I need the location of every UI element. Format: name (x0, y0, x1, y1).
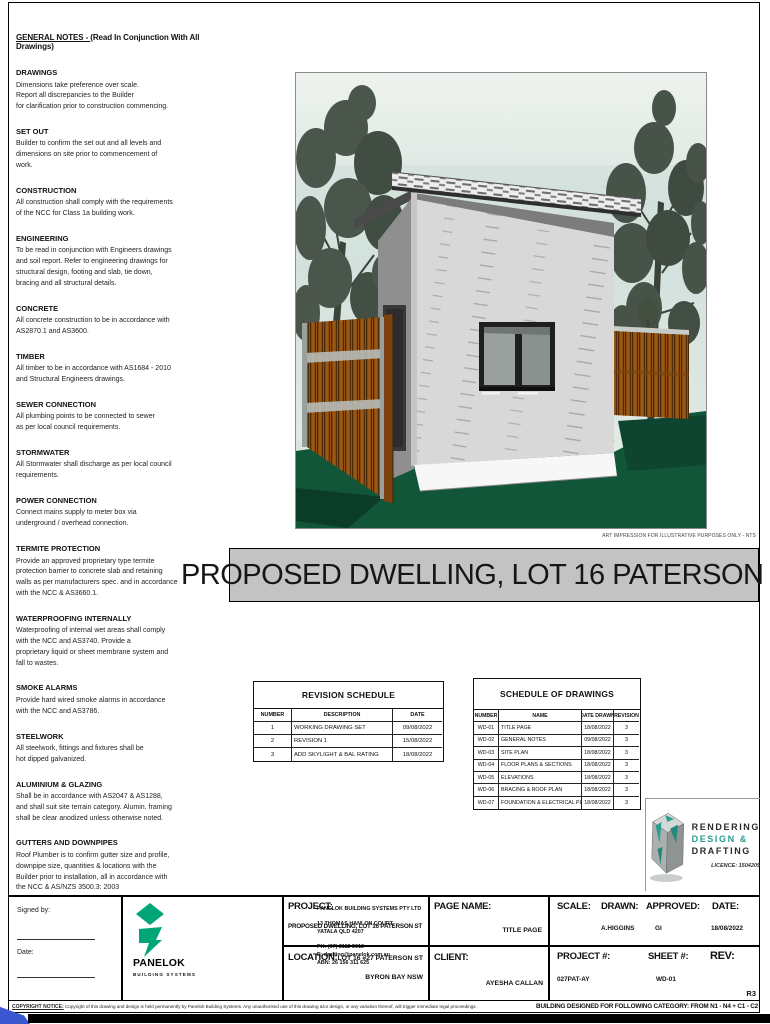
note-section: DRAWINGSDimensions take preference over … (16, 67, 222, 113)
project-sheet-rev-cell: PROJECT #: 027PAT-AY SHEET #: WD-01 REV:… (548, 946, 760, 1001)
title-banner-text: PROPOSED DWELLING, LOT 16 PATERSON ST (181, 559, 770, 592)
note-section-title: SMOKE ALARMS (16, 682, 222, 693)
table-cell: 18/08/2022 (582, 722, 614, 734)
cube-logo-icon (646, 809, 689, 887)
note-section-line: Connect mains supply to meter box via (16, 508, 222, 519)
note-section: CONCRETEAll concrete construction to be … (16, 303, 222, 338)
note-section: STEELWORKAll steelwork, fittings and fix… (16, 731, 222, 766)
rendering-design-drafting-logo: RENDERING DESIGN & DRAFTING LICENCE: 150… (645, 798, 760, 891)
note-section: STORMWATERAll Stormwater shall discharge… (16, 447, 222, 482)
note-section-line: for clarification prior to construction … (16, 102, 222, 113)
note-section-line: Dimensions take preference over scale. (16, 81, 222, 92)
note-section: SMOKE ALARMSProvide hard wired smoke ala… (16, 682, 222, 717)
note-section-line: Waterproofing of internal wet areas shal… (16, 626, 222, 637)
note-section-line: and shall suit site terrain category. Al… (16, 803, 222, 814)
location-cell: LOCATION: LOT 16 #27 PATERSON ST BYRON B… (282, 946, 428, 1001)
general-notes-heading-main: GENERAL NOTES - (16, 33, 90, 42)
date-value: 18/08/2022 (711, 925, 743, 932)
table-cell: WD-05 (474, 772, 499, 784)
location-value-line2: BYRON BAY NSW (365, 974, 423, 981)
table-cell: 1 (254, 722, 292, 735)
note-section-line: Shall be in accordance with AS2047 & AS1… (16, 792, 222, 803)
note-section-line: Provide hard wired smoke alarms in accor… (16, 696, 222, 707)
house-render-illustration (296, 73, 706, 528)
table-cell: 3 (614, 797, 639, 809)
art-impression-render (295, 72, 707, 529)
approved-label: APPROVED: (646, 901, 700, 912)
note-section-line: requirements. (16, 471, 222, 482)
location-label: LOCATION: (288, 952, 337, 963)
note-section-line: All Stormwater shall discharge as per lo… (16, 460, 222, 471)
table-header-cell: DATE (393, 709, 442, 722)
table-header-cell: DATE DRAWN (582, 710, 614, 722)
note-section-line: Builder prior to installation, all in ac… (16, 873, 222, 884)
panelok-logo-text: PANELOK (133, 957, 185, 969)
client-value: AYESHA CALLAN (486, 980, 543, 987)
page-name-label: PAGE NAME: (434, 901, 491, 912)
table-cell: 18/08/2022 (582, 760, 614, 772)
general-notes-heading: GENERAL NOTES - (Read In Conjunction Wit… (16, 33, 222, 51)
table-header-cell: DESCRIPTION (292, 709, 393, 722)
note-section-title: TIMBER (16, 351, 222, 362)
footer-notices: COPYRIGHT NOTICE: Copyright of this draw… (12, 1003, 758, 1010)
note-section-line: the NCC & AS/NZS 3500.3: 2003 (16, 883, 222, 894)
revision-schedule-table: REVISION SCHEDULE NUMBERDESCRIPTIONDATE1… (253, 681, 444, 762)
title-banner: PROPOSED DWELLING, LOT 16 PATERSON ST (229, 548, 759, 602)
table-cell: 3 (614, 784, 639, 796)
note-section-title: ALUMINIUM & GLAZING (16, 779, 222, 790)
note-section-line: All concrete construction to be in accor… (16, 316, 222, 327)
note-section-line: with the NCC and AS3740. Provide a (16, 637, 222, 648)
table-cell: 3 (614, 722, 639, 734)
note-section: ALUMINIUM & GLAZINGShall be in accordanc… (16, 779, 222, 825)
note-section-line: and Structural Engineers drawings. (16, 375, 222, 386)
note-section-title: TERMITE PROTECTION (16, 543, 222, 554)
note-section-line: fall to wastes. (16, 659, 222, 670)
bottom-black-bar (28, 1014, 770, 1023)
table-cell: 3 (614, 772, 639, 784)
table-cell: 09/08/2022 (393, 722, 442, 735)
table-cell: 3 (614, 760, 639, 772)
table-cell: 3 (254, 748, 292, 761)
note-section-title: ENGINEERING (16, 233, 222, 244)
table-cell: BRACING & ROOF PLAN (499, 784, 582, 796)
revision-schedule-title: REVISION SCHEDULE (254, 682, 443, 709)
copyright-text: Copyright of this drawing and design is … (65, 1004, 477, 1009)
table-cell: WD-01 (474, 722, 499, 734)
note-section-line: All steelwork, fittings and fixtures sha… (16, 744, 222, 755)
project-cell: PROJECT: PROPOSED DWELLING, LOT 16 PATER… (282, 897, 428, 945)
page-name-value: TITLE PAGE (502, 927, 542, 934)
note-section-line: All construction shall comply with the r… (16, 198, 222, 209)
note-section-title: SET OUT (16, 126, 222, 137)
title-block: Signed by: Date: PANELOK BUILDING SYSTEM… (9, 895, 760, 1001)
scale-label: SCALE: (557, 901, 591, 912)
project-value: PROPOSED DWELLING, LOT 16 PATERSON ST (288, 923, 422, 930)
note-section-title: WATERPROOFING INTERNALLY (16, 613, 222, 624)
table-cell: SITE PLAN (499, 747, 582, 759)
signature-cell: Signed by: Date: (9, 897, 121, 1001)
location-value-line1: LOT 16 #27 PATERSON ST (338, 955, 424, 962)
page-name-cell: PAGE NAME: TITLE PAGE (428, 897, 548, 945)
window (479, 322, 555, 395)
panelok-cell: PANELOK BUILDING SYSTEMS PANELOK BUILDIN… (121, 897, 282, 1001)
table-cell: WD-04 (474, 760, 499, 772)
rev-label: REV: (710, 950, 734, 962)
note-section: SEWER CONNECTIONAll plumbing points to b… (16, 399, 222, 434)
table-cell: 18/08/2022 (393, 748, 442, 761)
note-section-line: underground / overhead connection. (16, 519, 222, 530)
table-cell: WD-07 (474, 797, 499, 809)
table-cell: TITLE PAGE (499, 722, 582, 734)
table-cell: WORKING DRAWING SET (292, 722, 393, 735)
note-section-line: AS2870.1 and AS3600. (16, 327, 222, 338)
table-cell: REVISION 1 (292, 735, 393, 748)
note-section-title: STORMWATER (16, 447, 222, 458)
rdd-line1: RENDERING (692, 821, 760, 833)
project-number-label: PROJECT #: (557, 951, 610, 962)
rev-value: R3 (746, 989, 756, 998)
note-section: SET OUTBuilder to confirm the set out an… (16, 126, 222, 172)
date-line[interactable] (17, 977, 95, 978)
note-section: ENGINEERINGTo be read in conjunction wit… (16, 233, 222, 290)
note-section: GUTTERS AND DOWNPIPESRoof Plumber is to … (16, 837, 222, 894)
table-cell: ADD SKYLIGHT & BAL RATING (292, 748, 393, 761)
general-notes-column: GENERAL NOTES - (Read In Conjunction Wit… (16, 33, 222, 907)
note-section-line: and soil report. Refer to engineering dr… (16, 257, 222, 268)
note-section-line: hot dipped galvanized. (16, 755, 222, 766)
drawn-value: A.HIGGINS (601, 925, 634, 932)
signature-line[interactable] (17, 939, 95, 940)
note-section-line: All plumbing points to be connected to s… (16, 412, 222, 423)
note-section-line: Report all discrepancies to the Builder (16, 91, 222, 102)
project-number-value: 027PAT-AY (557, 976, 590, 983)
table-cell: WD-06 (474, 784, 499, 796)
table-cell: 09/08/2022 (582, 735, 614, 747)
table-cell: 15/08/2022 (393, 735, 442, 748)
table-header-cell: NUMBER (254, 709, 292, 722)
building-category-note: BUILDING DESIGNED FOR FOLLOWING CATEGORY… (536, 1003, 758, 1010)
table-cell: 18/08/2022 (582, 747, 614, 759)
table-cell: 3 (614, 735, 639, 747)
date-column-label: DATE: (712, 901, 739, 912)
approved-value: GI (655, 925, 662, 932)
table-cell: 3 (614, 747, 639, 759)
panelok-logo-subtext: BUILDING SYSTEMS (133, 972, 196, 977)
table-cell: WD-03 (474, 747, 499, 759)
sheet-number-label: SHEET #: (648, 951, 688, 962)
table-cell: 18/08/2022 (582, 784, 614, 796)
client-label: CLIENT: (434, 952, 468, 963)
note-section-line: of the NCC for Class 1a building work. (16, 209, 222, 220)
rdd-licence: LICENCE: 1504205 (692, 863, 760, 869)
schedule-of-drawings-table: SCHEDULE OF DRAWINGS NUMBERNAMEDATE DRAW… (473, 678, 641, 810)
panelok-logo-icon (134, 903, 166, 957)
drawn-label: DRAWN: (601, 901, 638, 912)
signed-by-label: Signed by: (17, 907, 50, 914)
drawing-sheet: GENERAL NOTES - (Read In Conjunction Wit… (0, 0, 770, 1024)
note-section-line: proprietary liquid or sheet membrane sys… (16, 648, 222, 659)
schedule-of-drawings-title: SCHEDULE OF DRAWINGS (474, 679, 640, 710)
note-section-line: Builder to confirm the set out and all l… (16, 139, 222, 150)
note-section-line: with the NCC and AS3786. (16, 707, 222, 718)
note-section-title: CONSTRUCTION (16, 185, 222, 196)
note-section-line: downpipe size, quantities & locations wi… (16, 862, 222, 873)
note-section-line: as per local council requirements. (16, 423, 222, 434)
scale-drawn-approved-date-cell: SCALE: DRAWN: APPROVED: DATE: A.HIGGINS … (548, 897, 760, 945)
schedule-of-drawings-grid: NUMBERNAMEDATE DRAWNREVISIONWD-01TITLE P… (474, 710, 640, 809)
table-cell: 18/08/2022 (582, 797, 614, 809)
table-header-cell: NAME (499, 710, 582, 722)
note-section-title: SEWER CONNECTION (16, 399, 222, 410)
note-section-line: Roof Plumber is to confirm gutter size a… (16, 851, 222, 862)
table-cell: GENERAL NOTES (499, 735, 582, 747)
project-label: PROJECT: (288, 901, 333, 912)
revision-schedule-grid: NUMBERDESCRIPTIONDATE1WORKING DRAWING SE… (254, 709, 443, 761)
copyright-notice: COPYRIGHT NOTICE: Copyright of this draw… (12, 1004, 477, 1010)
table-cell: 18/08/2022 (582, 772, 614, 784)
table-cell: 2 (254, 735, 292, 748)
sheet-number-value: WD-01 (656, 976, 676, 983)
table-cell: ELEVATIONS (499, 772, 582, 784)
note-section: POWER CONNECTIONConnect mains supply to … (16, 495, 222, 530)
client-cell: CLIENT: AYESHA CALLAN (428, 946, 548, 1001)
rdd-line2: DESIGN & (692, 833, 760, 845)
note-section-title: DRAWINGS (16, 67, 222, 78)
note-section-line: All timber to be in accordance with AS16… (16, 364, 222, 375)
note-section-title: STEELWORK (16, 731, 222, 742)
notes-sections: DRAWINGSDimensions take preference over … (16, 67, 222, 894)
note-section-line: bracing and all structural details. (16, 279, 222, 290)
note-section-title: CONCRETE (16, 303, 222, 314)
note-section-title: GUTTERS AND DOWNPIPES (16, 837, 222, 848)
note-section-title: POWER CONNECTION (16, 495, 222, 506)
note-section-line: shall be clear anodized unless otherwise… (16, 814, 222, 825)
table-cell: FOUNDATION & ELECTRICAL PLANS (499, 797, 582, 809)
note-section: TIMBERAll timber to be in accordance wit… (16, 351, 222, 386)
date-label: Date: (17, 949, 34, 956)
table-cell: FLOOR PLANS & SECTIONS (499, 760, 582, 772)
copyright-label: COPYRIGHT NOTICE: (12, 1004, 64, 1010)
table-cell: WD-02 (474, 735, 499, 747)
rdd-logo-text: RENDERING DESIGN & DRAFTING LICENCE: 150… (692, 821, 760, 869)
note-section-line: work. (16, 161, 222, 172)
note-section: WATERPROOFING INTERNALLYWaterproofing of… (16, 613, 222, 670)
table-header-cell: NUMBER (474, 710, 499, 722)
note-section: CONSTRUCTIONAll construction shall compl… (16, 185, 222, 220)
art-impression-caption: ART IMPRESSION FOR ILLUSTRATIVE PURPOSES… (602, 533, 756, 539)
note-section-line: structural design, footing and slab, tie… (16, 268, 222, 279)
table-header-cell: REVISION (614, 710, 639, 722)
note-section-line: dimensions on site prior to commencement… (16, 150, 222, 161)
rdd-line3: DRAFTING (692, 845, 760, 857)
note-section-line: To be read in conjunction with Engineers… (16, 246, 222, 257)
